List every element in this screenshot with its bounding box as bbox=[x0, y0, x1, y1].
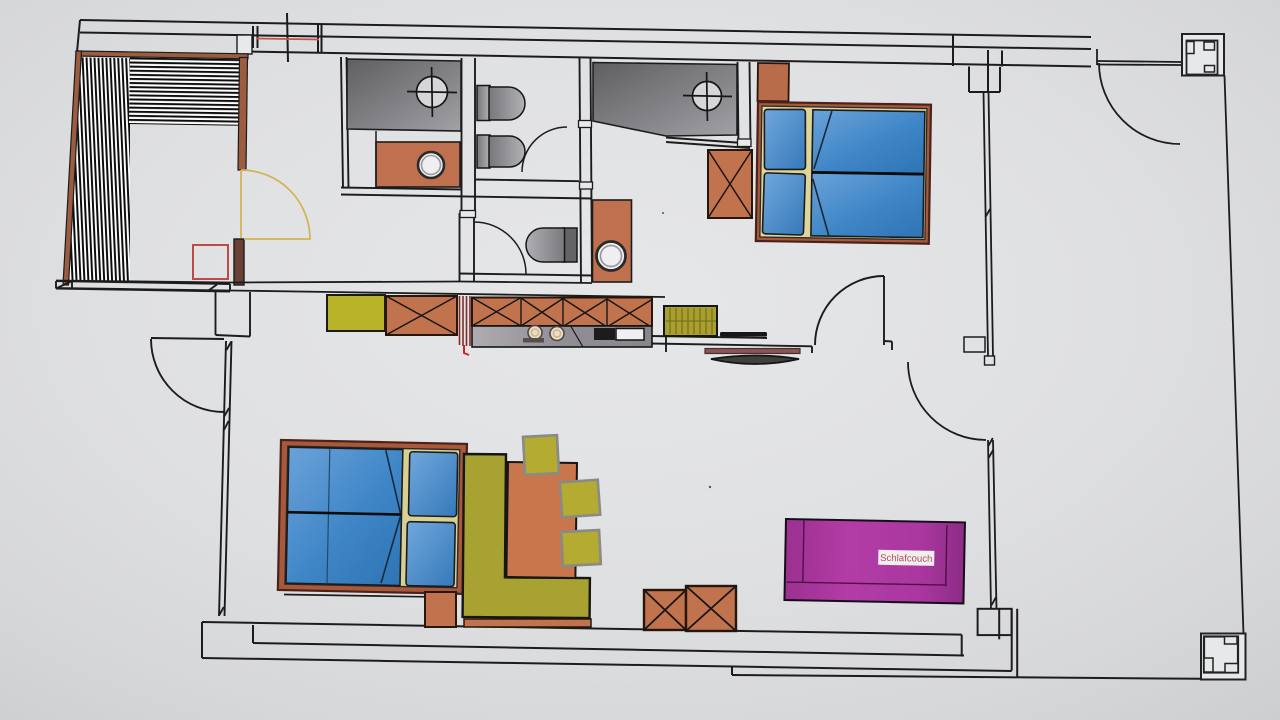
svg-text:Schlafcouch: Schlafcouch bbox=[880, 553, 932, 565]
